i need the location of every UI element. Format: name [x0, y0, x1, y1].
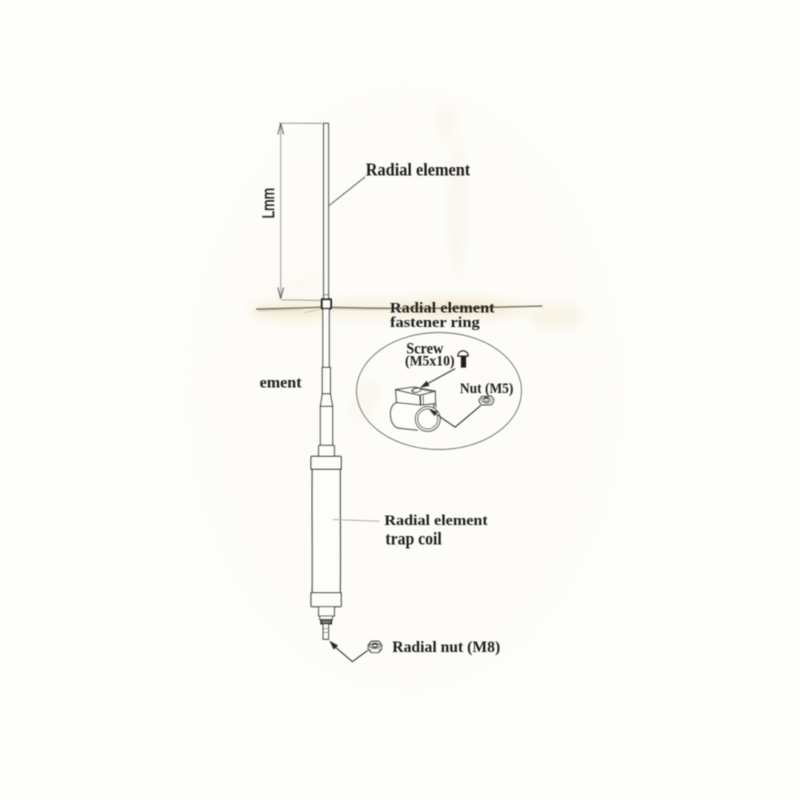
- svg-text:fastener ring: fastener ring: [390, 314, 480, 331]
- svg-text:(M5x10): (M5x10): [405, 353, 455, 369]
- svg-text:Radial element: Radial element: [384, 512, 487, 529]
- svg-text:ement: ement: [260, 373, 303, 391]
- svg-text:trap coil: trap coil: [385, 529, 442, 549]
- svg-text:Lmm: Lmm: [260, 188, 278, 219]
- svg-text:Radial element: Radial element: [366, 159, 471, 179]
- svg-text:Radial nut (M8): Radial nut (M8): [392, 639, 500, 656]
- svg-text:Nut (M5): Nut (M5): [460, 381, 514, 397]
